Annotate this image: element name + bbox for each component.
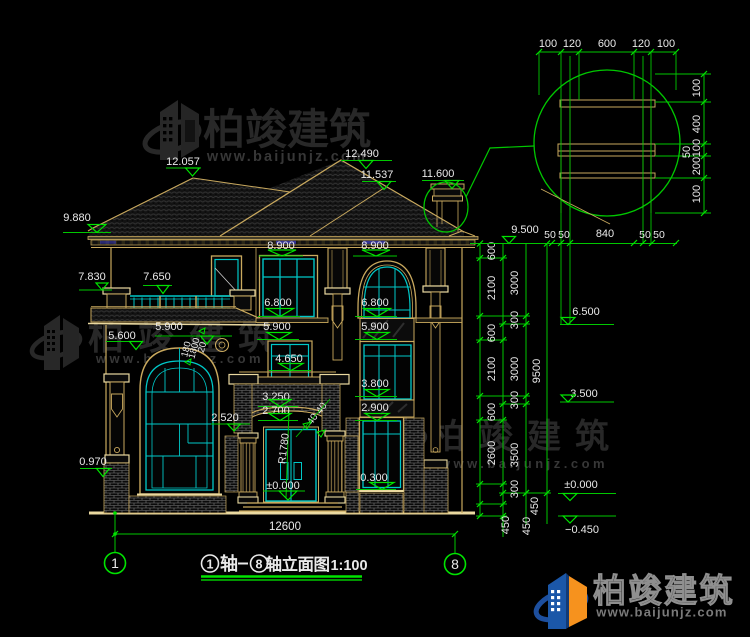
- svg-text:www.baijunjz.com: www.baijunjz.com: [439, 456, 608, 471]
- svg-text:300: 300: [509, 311, 521, 329]
- svg-text:2.700: 2.700: [262, 405, 290, 417]
- svg-text:8: 8: [256, 558, 263, 572]
- svg-text:50: 50: [544, 229, 556, 241]
- svg-text:200: 200: [691, 157, 703, 175]
- svg-text:600: 600: [486, 242, 498, 260]
- svg-text:柏竣建筑: 柏竣建筑: [593, 572, 735, 609]
- svg-text:400: 400: [691, 115, 703, 133]
- svg-text:6.800: 6.800: [264, 297, 292, 309]
- svg-text:5.600: 5.600: [108, 330, 136, 342]
- svg-text:120: 120: [632, 38, 650, 50]
- svg-text:7.830: 7.830: [78, 271, 106, 283]
- svg-text:840: 840: [596, 228, 614, 240]
- svg-text:柏竣建筑: 柏竣建筑: [203, 106, 371, 153]
- svg-text:2100: 2100: [486, 276, 498, 300]
- svg-text:3.800: 3.800: [361, 378, 389, 390]
- svg-text:450: 450: [529, 497, 541, 515]
- svg-text:1:100: 1:100: [330, 558, 367, 574]
- svg-text:轴: 轴: [220, 553, 238, 574]
- svg-text:450: 450: [500, 516, 512, 534]
- svg-text:6.500: 6.500: [572, 306, 600, 318]
- svg-text:6.800: 6.800: [361, 297, 389, 309]
- svg-text:±0.000: ±0.000: [564, 479, 598, 491]
- svg-text:50: 50: [653, 229, 665, 241]
- svg-text:±0.000: ±0.000: [266, 480, 300, 492]
- svg-text:300: 300: [509, 480, 521, 498]
- svg-text:0.970: 0.970: [79, 456, 107, 468]
- svg-text:柏竣建筑: 柏竣建筑: [431, 417, 623, 456]
- svg-text:9.880: 9.880: [63, 212, 91, 224]
- svg-text:600: 600: [486, 403, 498, 421]
- svg-text:9.500: 9.500: [511, 224, 539, 236]
- svg-text:50: 50: [681, 146, 693, 158]
- svg-text:3000: 3000: [509, 357, 521, 381]
- svg-text:600: 600: [598, 38, 616, 50]
- svg-text:450: 450: [521, 517, 533, 535]
- svg-text:50: 50: [639, 229, 651, 241]
- svg-text:5.900: 5.900: [263, 321, 291, 333]
- svg-text:12.490: 12.490: [345, 148, 379, 160]
- svg-text:2600: 2600: [486, 441, 498, 465]
- svg-text:11.537: 11.537: [361, 169, 394, 181]
- svg-text:5.900: 5.900: [155, 321, 183, 333]
- svg-text:3000: 3000: [509, 271, 521, 295]
- svg-text:100: 100: [657, 38, 675, 50]
- svg-text:5.900: 5.900: [361, 321, 389, 333]
- svg-text:300: 300: [509, 391, 521, 409]
- svg-text:7.650: 7.650: [143, 271, 171, 283]
- svg-text:50: 50: [558, 229, 570, 241]
- svg-text:2.520: 2.520: [211, 412, 239, 424]
- svg-text:−0.450: −0.450: [565, 524, 599, 536]
- svg-text:3.250: 3.250: [262, 391, 290, 403]
- svg-text:www.baijunjz.com: www.baijunjz.com: [595, 605, 727, 620]
- svg-text:2.900: 2.900: [361, 402, 389, 414]
- svg-text:12.057: 12.057: [166, 156, 200, 168]
- svg-text:3.500: 3.500: [570, 388, 598, 400]
- svg-text:1: 1: [111, 555, 119, 571]
- svg-text:3500: 3500: [509, 443, 521, 467]
- svg-text:12600: 12600: [269, 521, 301, 533]
- svg-text:11.600: 11.600: [422, 168, 455, 180]
- svg-text:100: 100: [539, 38, 557, 50]
- svg-text:100: 100: [691, 185, 703, 203]
- svg-text:2100: 2100: [486, 357, 498, 381]
- svg-text:100: 100: [691, 79, 703, 97]
- svg-text:9500: 9500: [531, 359, 543, 383]
- svg-text:600: 600: [486, 324, 498, 342]
- svg-text:轴立面图: 轴立面图: [266, 554, 330, 574]
- svg-text:8: 8: [451, 556, 459, 572]
- svg-text:120: 120: [563, 38, 581, 50]
- svg-text:1: 1: [207, 558, 214, 572]
